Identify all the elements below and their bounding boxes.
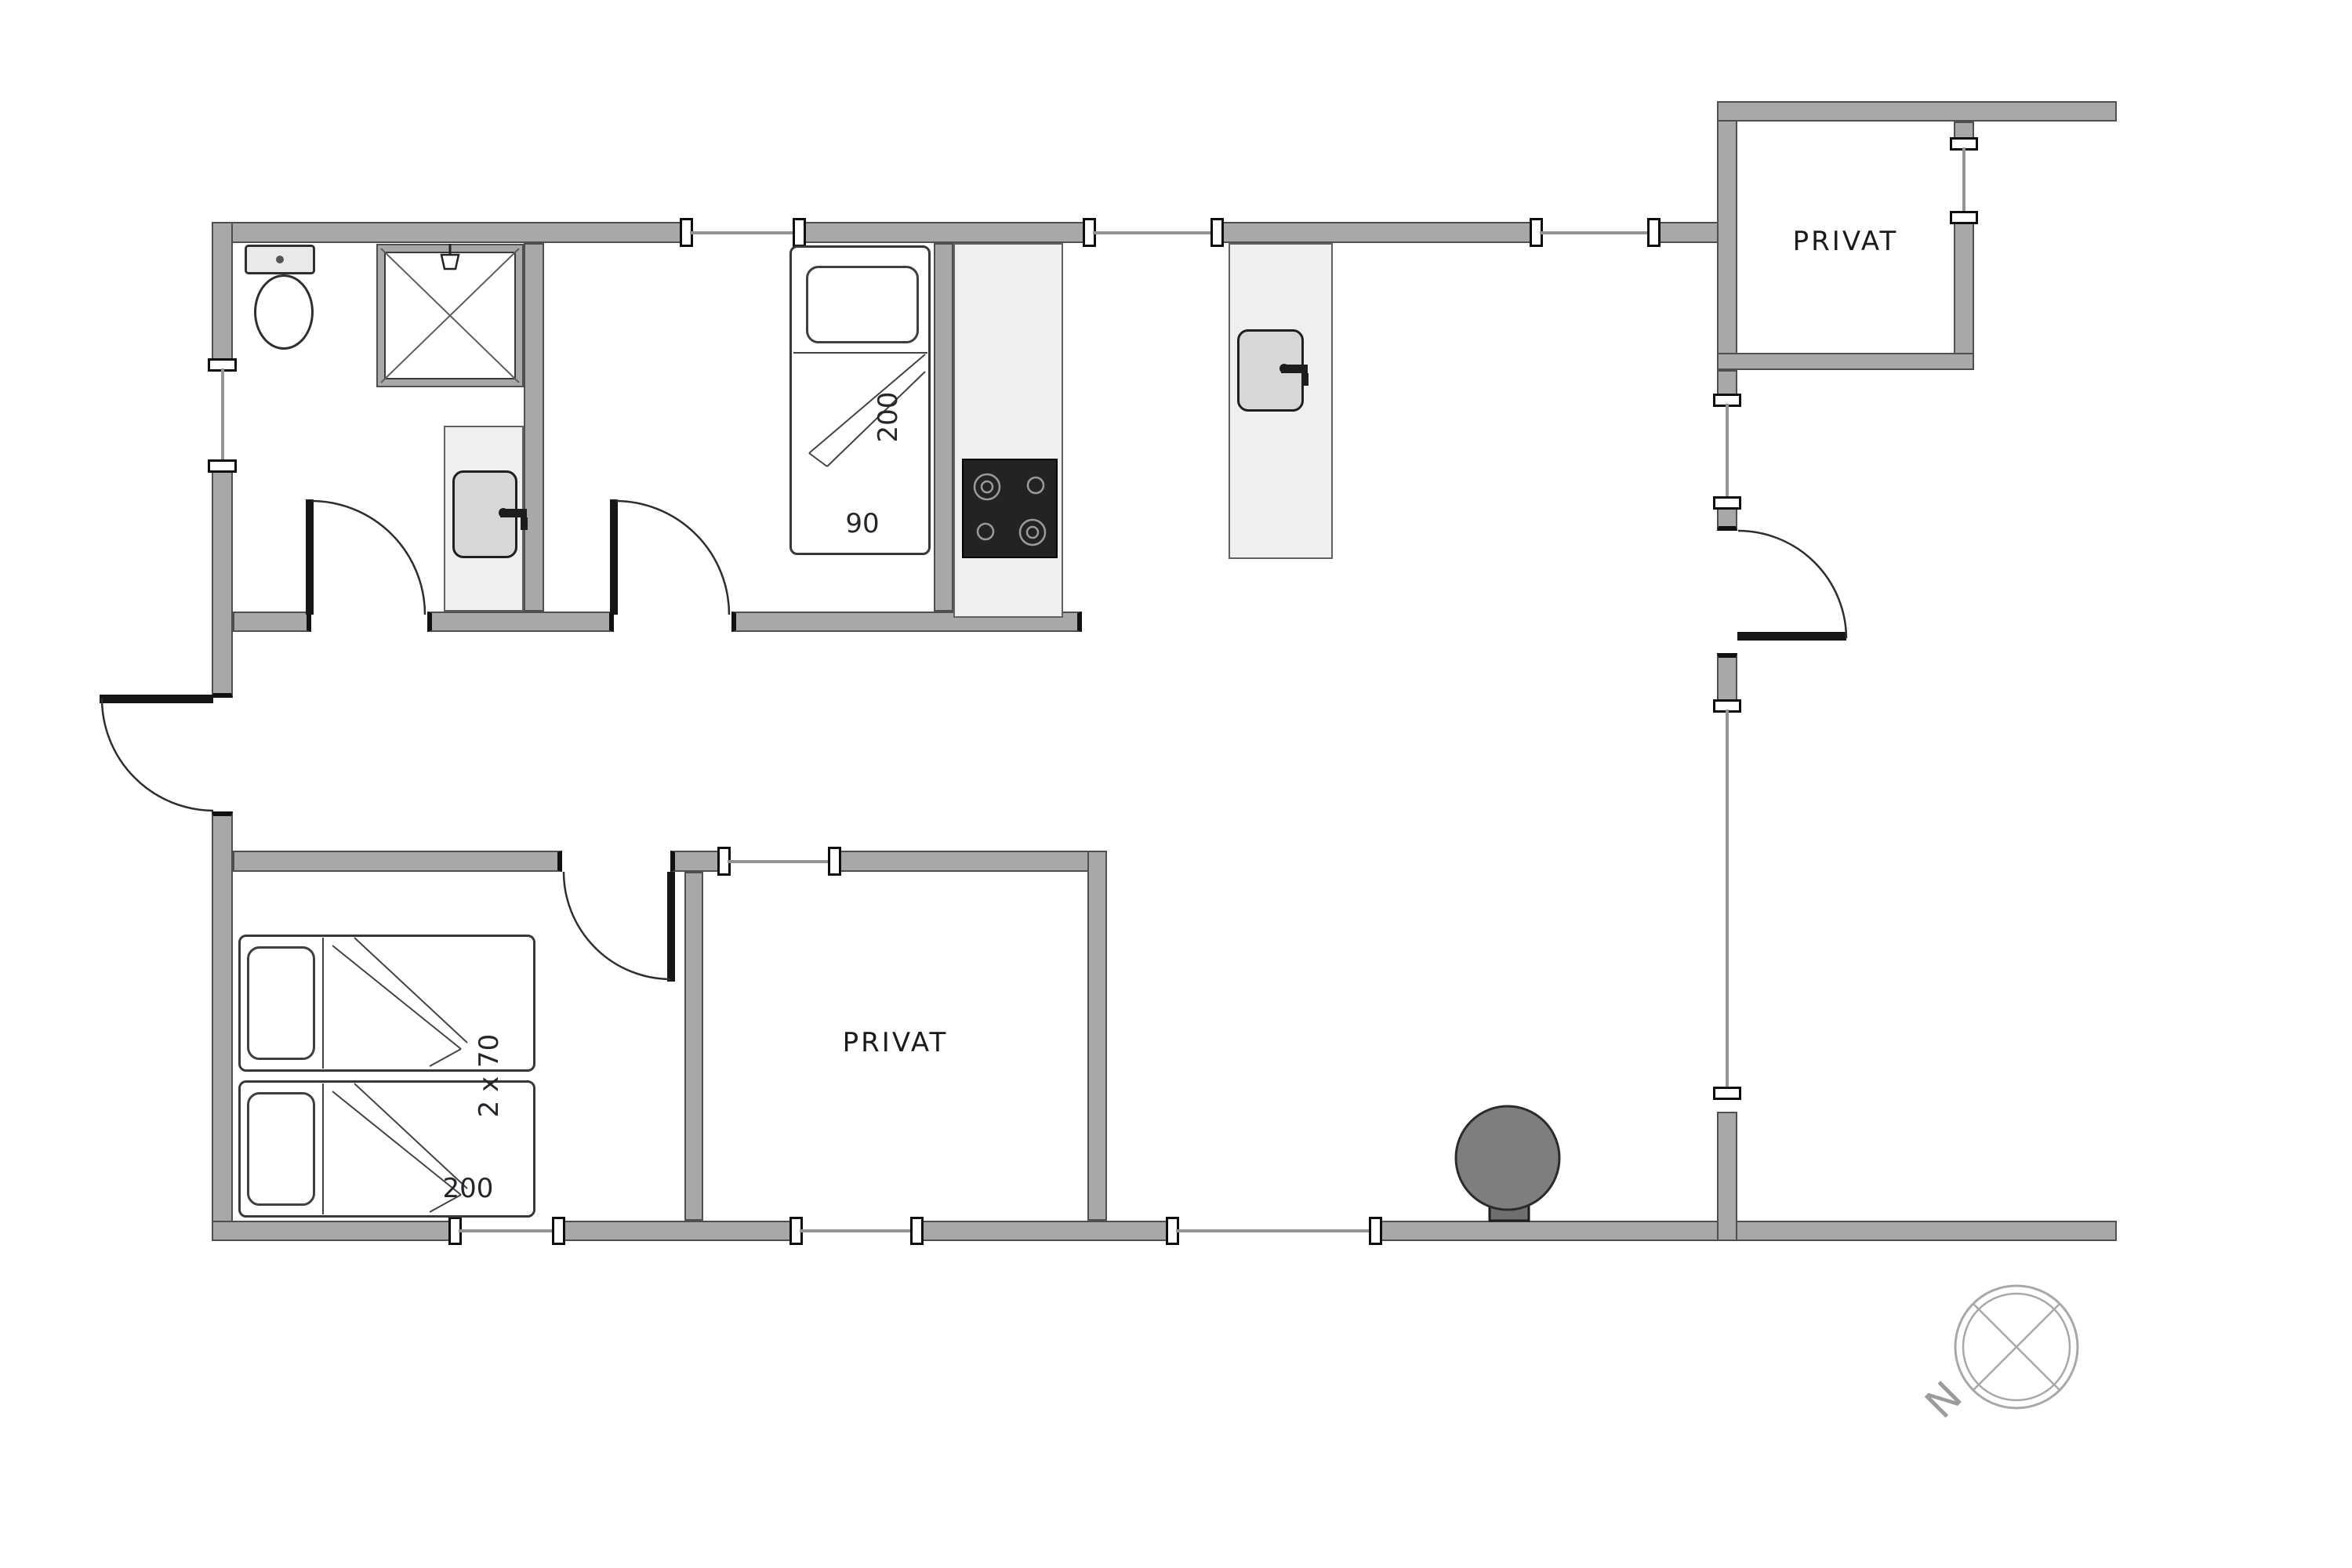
- wall-h2-a: [233, 851, 562, 872]
- kitchen-counter: [953, 243, 1063, 618]
- window-icon: [682, 222, 804, 243]
- compass-icon: N: [1917, 1286, 2078, 1428]
- cooktop-icon: [962, 459, 1058, 558]
- wall-bedroom-right: [684, 872, 703, 1221]
- window-glass: [1726, 710, 1729, 1090]
- window-glass: [459, 1229, 555, 1232]
- window-frame: [828, 847, 841, 876]
- room-label-middle: PRIVAT: [786, 1025, 1005, 1060]
- pillow: [247, 1092, 315, 1206]
- dim-twin-beds-width: 2 x 70: [475, 1009, 503, 1142]
- wall-right-1: [1717, 370, 1737, 396]
- window-frame: [1369, 1217, 1382, 1245]
- window-frame: [1950, 211, 1978, 224]
- pillow: [806, 266, 919, 343]
- sink-icon: [452, 470, 517, 558]
- window-icon: [1717, 396, 1737, 507]
- window-icon: [1954, 140, 1974, 222]
- window-frame: [1713, 496, 1741, 510]
- door-leaf: [667, 872, 675, 982]
- wall-right-3: [1717, 1112, 1737, 1241]
- wall-right-2: [1717, 653, 1737, 702]
- dim-twin-beds-length: 200: [421, 1174, 515, 1203]
- wall-annex-right-b: [1954, 222, 1974, 370]
- window-frame: [910, 1217, 924, 1245]
- window-frame: [1210, 218, 1224, 247]
- dim-niche-bed-width: 90: [827, 510, 898, 538]
- window-frame: [208, 459, 237, 473]
- wall-annex-left: [1717, 101, 1737, 370]
- wall-left-3: [212, 811, 233, 1241]
- door-leaf: [100, 695, 213, 703]
- room-label-annex: PRIVAT: [1737, 226, 1954, 257]
- wall-bottom-3: [921, 1221, 1168, 1241]
- wall-privat-right: [1087, 851, 1107, 1221]
- sink-icon: [1237, 329, 1304, 412]
- window-glass: [1962, 147, 1965, 214]
- window-glass: [1540, 231, 1650, 234]
- floor-plan: N PRIVAT PRIVAT 200 90 2 x 70 200: [0, 0, 2352, 1568]
- wall-bathroom-right: [524, 243, 544, 612]
- window-glass: [1176, 1229, 1372, 1232]
- wall-h1-a: [233, 612, 311, 632]
- window-icon: [1085, 222, 1221, 243]
- window-icon: [720, 851, 839, 872]
- wall-top-3: [1221, 222, 1532, 243]
- wall-h1-b: [427, 612, 614, 632]
- shower-tray: [384, 252, 516, 379]
- pillow: [247, 946, 315, 1060]
- window-glass: [1093, 231, 1214, 234]
- door-leaf: [1737, 632, 1846, 641]
- door-leaf: [610, 499, 618, 615]
- window-frame: [793, 218, 806, 247]
- wood-stove-icon: [1456, 1106, 1559, 1221]
- wall-right-door-top: [1717, 507, 1737, 531]
- window-glass: [690, 231, 796, 234]
- window-frame: [552, 1217, 565, 1245]
- wall-annex-top: [1717, 101, 2117, 122]
- window-icon: [1168, 1221, 1380, 1241]
- wall-h2-c: [839, 851, 1107, 872]
- toilet-icon: [245, 245, 315, 274]
- window-icon: [212, 361, 233, 470]
- dim-niche-bed-length: 200: [874, 366, 902, 468]
- wall-top-1: [212, 222, 682, 243]
- wall-bottom-4: [1380, 1221, 2117, 1241]
- window-icon: [451, 1221, 563, 1241]
- wall-niche-right: [934, 243, 953, 612]
- door-leaf: [306, 499, 314, 615]
- window-icon: [1532, 222, 1658, 243]
- wall-left-1: [212, 222, 233, 361]
- window-glass: [221, 368, 224, 463]
- window-icon: [1717, 702, 1737, 1098]
- wall-annex-bottom: [1717, 353, 1974, 370]
- wall-top-2: [804, 222, 1085, 243]
- window-frame: [1647, 218, 1661, 247]
- window-glass: [800, 1229, 913, 1232]
- wall-bottom-2: [563, 1221, 792, 1241]
- window-frame: [1713, 1087, 1741, 1100]
- window-glass: [728, 860, 831, 863]
- shower-icon: [376, 244, 524, 387]
- wall-bottom-1: [212, 1221, 451, 1241]
- window-glass: [1726, 404, 1729, 499]
- toilet-bowl: [254, 274, 314, 350]
- window-icon: [792, 1221, 921, 1241]
- compass-north-label: N: [1917, 1373, 1972, 1428]
- wall-left-2: [212, 470, 233, 698]
- wall-h2-b: [670, 851, 720, 872]
